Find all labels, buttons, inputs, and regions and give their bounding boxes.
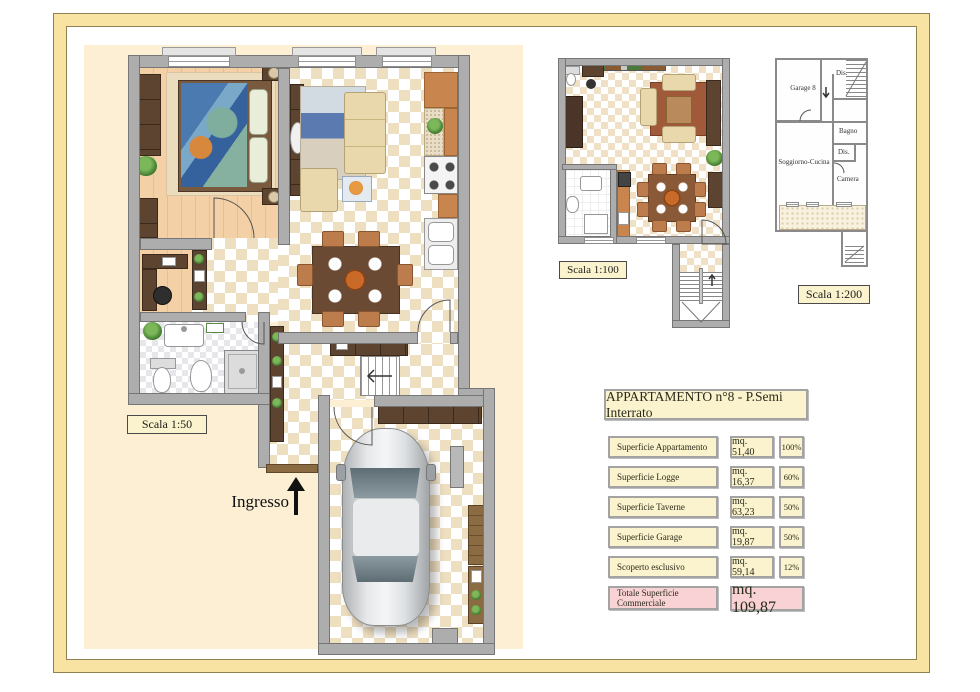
table-row-label: Superficie Logge <box>608 466 718 488</box>
taverna-chair <box>652 163 667 175</box>
table-row-value: mq. 51,40 <box>730 436 774 458</box>
window <box>836 202 852 207</box>
wall <box>278 332 418 344</box>
table-row-label: Superficie Taverne <box>608 496 718 518</box>
wall <box>558 58 730 66</box>
table-row-pct: 50% <box>779 526 804 548</box>
table-row-value: mq. 59,14 <box>730 556 774 578</box>
room-label-garage: Garage 8 <box>786 84 820 92</box>
plant-icon <box>194 254 204 264</box>
room-label-dis: Dis. <box>836 69 847 77</box>
window <box>806 202 819 207</box>
room-label-soggiorno: Soggiorno-Cucina <box>777 158 831 166</box>
car-rear-window <box>352 556 418 582</box>
wall <box>258 312 270 468</box>
scale-label-200: Scala 1:200 <box>798 285 870 304</box>
taverna-stove <box>618 172 631 187</box>
kitchen-sink-basin <box>428 222 454 242</box>
room-label-dis: Dis. <box>838 148 849 156</box>
wall <box>820 58 822 122</box>
wall <box>562 164 617 170</box>
taverna-couch <box>662 74 696 91</box>
toilet <box>153 367 171 393</box>
table-row-pct: 50% <box>779 496 804 518</box>
scale-label-50: Scala 1:50 <box>127 415 207 434</box>
wall <box>458 55 470 400</box>
sink-faucet <box>181 326 187 332</box>
wall <box>722 58 730 244</box>
taverna-wardrobe <box>708 172 723 208</box>
taverna-chair <box>676 220 691 232</box>
dining-chair <box>358 231 380 247</box>
stove <box>424 156 458 194</box>
taverna-chair <box>637 182 649 197</box>
table-row-label: Superficie Garage <box>608 526 718 548</box>
wall <box>558 58 566 244</box>
dining-chair <box>297 264 313 286</box>
entrance-label: Ingresso <box>225 492 289 512</box>
entrance-arrow-icon <box>287 477 305 491</box>
armchair <box>300 168 338 212</box>
room-label-bagno: Bagno <box>839 127 857 135</box>
taverna-table <box>666 96 692 124</box>
taverna-chair <box>694 182 706 197</box>
taverna-sink <box>618 212 629 225</box>
window-sill <box>162 47 236 56</box>
dining-table <box>312 246 400 314</box>
taverna-chair <box>652 220 667 232</box>
drawing-sheet: Garage 8 Dis. Bagno Dis. Soggiorno-Cucin… <box>0 0 980 692</box>
wall <box>374 395 495 407</box>
plant-icon <box>471 590 481 600</box>
cabinet-item <box>194 270 205 282</box>
shower-drain <box>239 368 245 374</box>
taverna-dining-table <box>648 174 696 222</box>
taverna-chair <box>676 163 691 175</box>
wall <box>672 244 680 328</box>
sofa <box>344 92 386 174</box>
stair-rail <box>699 268 703 304</box>
table-row-pct: 60% <box>779 466 804 488</box>
window-sill <box>292 47 362 56</box>
desk-chair <box>153 286 172 305</box>
plant-icon <box>471 605 481 615</box>
wall <box>483 388 495 655</box>
kitchen-cabinet <box>444 108 458 156</box>
plant-icon <box>427 118 443 134</box>
wall <box>672 320 730 328</box>
taverna-shower <box>584 214 608 234</box>
plan200-patio <box>779 205 866 230</box>
scale-label-100: Scala 1:100 <box>559 261 627 279</box>
table-row-value: mq. 19,87 <box>730 526 774 548</box>
desk-pad <box>162 257 176 266</box>
car-roof <box>352 498 420 558</box>
wall <box>318 395 330 655</box>
wall <box>140 238 212 250</box>
wall <box>610 164 617 244</box>
wall <box>775 121 868 123</box>
window <box>168 56 230 67</box>
window <box>636 237 666 244</box>
car-mirror <box>336 464 346 481</box>
taverna-couch <box>640 88 657 126</box>
wall <box>140 312 246 322</box>
plant-icon <box>143 322 162 340</box>
taverna-bath-sink <box>580 176 602 191</box>
taverna-chair <box>694 202 706 217</box>
taverna-couch <box>662 126 696 143</box>
table-row-pct: 100% <box>779 436 804 458</box>
wall <box>832 123 834 205</box>
taverna-chair <box>586 79 596 89</box>
wall <box>722 244 730 328</box>
car-windshield <box>350 468 420 498</box>
plan200-ext-stairs <box>845 246 864 264</box>
taverna-chair <box>637 202 649 217</box>
table-row-label: Scoperto esclusivo <box>608 556 718 578</box>
kitchen-cabinet <box>424 72 458 108</box>
wall <box>128 393 270 405</box>
table-row-label: Superficie Appartamento <box>608 436 718 458</box>
garage-column <box>450 446 464 488</box>
internal-stairs <box>360 356 400 396</box>
plan200-stairs <box>846 60 866 98</box>
window <box>382 56 432 67</box>
window-sill <box>376 47 436 56</box>
shelf-item <box>471 570 482 583</box>
taverna-toilet <box>566 73 576 86</box>
bath-accessory <box>206 323 224 333</box>
bed-pillow <box>249 137 268 183</box>
bidet <box>190 360 212 392</box>
wall <box>832 98 868 100</box>
window <box>786 202 799 207</box>
entry-threshold <box>266 464 318 473</box>
plant-icon <box>706 150 723 166</box>
entrance-arrow-stem <box>294 490 298 515</box>
table-row-pct: 12% <box>779 556 804 578</box>
coffee-table-plate <box>349 181 363 195</box>
bed-duvet <box>181 83 247 187</box>
plant-icon <box>194 292 204 302</box>
table-row-value: mq. 63,23 <box>730 496 774 518</box>
wall <box>432 628 458 644</box>
taverna-wc <box>566 196 579 213</box>
taverna-tv-unit <box>706 80 721 146</box>
wall <box>834 143 868 145</box>
window <box>584 237 614 244</box>
wall <box>318 643 495 655</box>
wall <box>128 55 140 405</box>
wall <box>854 143 856 162</box>
dining-chair <box>358 311 380 327</box>
table-row-value: mq. 16,37 <box>730 466 774 488</box>
bed-pillow <box>249 89 268 135</box>
wall <box>278 68 290 245</box>
dining-chair <box>397 264 413 286</box>
wall <box>834 160 856 162</box>
car-mirror <box>426 464 436 481</box>
plant-icon <box>272 356 282 366</box>
dining-chair <box>322 231 344 247</box>
wall <box>450 332 458 344</box>
plant-icon <box>272 398 282 408</box>
room-label-camera: Camera <box>837 175 859 183</box>
kitchen-cabinet <box>438 194 458 218</box>
table-total-value: mq. 109,87 <box>730 586 804 611</box>
window <box>298 56 356 67</box>
cabinet-item <box>272 376 282 388</box>
stairwell-winders <box>680 304 722 320</box>
dining-chair <box>322 311 344 327</box>
kitchen-sink-basin <box>428 245 454 265</box>
table-title: APPARTAMENTO n°8 - P.Semi Interrato <box>604 389 808 420</box>
table-total-label: Totale Superficie Commerciale <box>608 586 718 610</box>
